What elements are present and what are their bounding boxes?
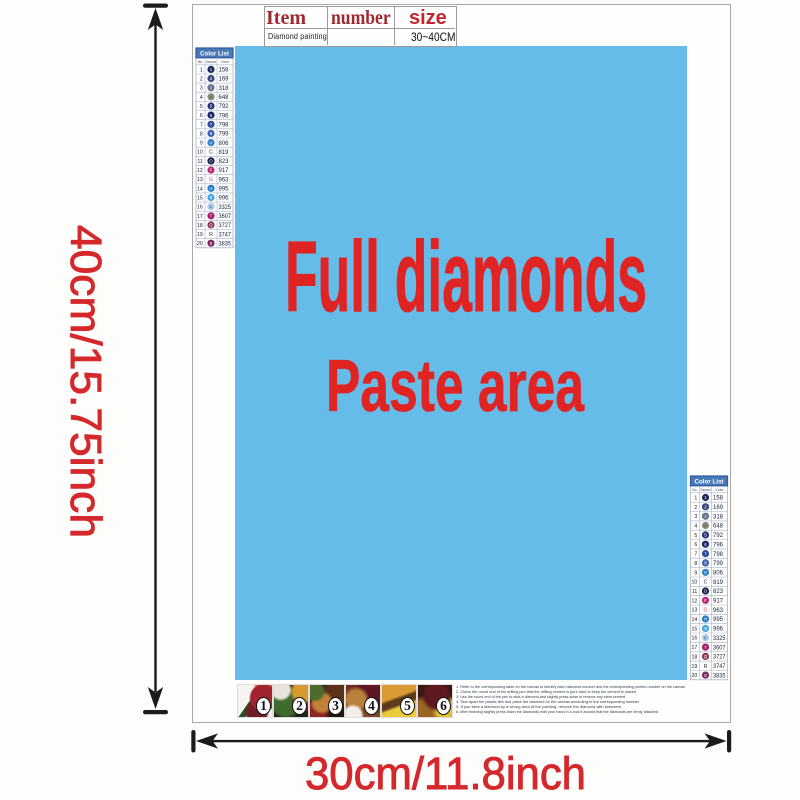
svg-text:14: 14 xyxy=(692,617,698,623)
svg-text:3835: 3835 xyxy=(219,241,232,247)
svg-text:3727: 3727 xyxy=(713,655,726,661)
svg-text:Q: Q xyxy=(209,223,213,228)
svg-text:15: 15 xyxy=(197,196,203,202)
svg-text:C: C xyxy=(704,580,708,586)
svg-text:2: 2 xyxy=(694,505,697,511)
svg-text:806: 806 xyxy=(219,141,230,147)
svg-text:30cm/11.8inch: 30cm/11.8inch xyxy=(305,748,586,799)
svg-text:6: 6 xyxy=(694,542,697,548)
svg-text:158: 158 xyxy=(713,496,724,502)
svg-text:4: 4 xyxy=(200,95,203,101)
svg-text:823: 823 xyxy=(219,159,230,165)
svg-text:806: 806 xyxy=(713,571,724,577)
svg-text:917: 917 xyxy=(713,599,724,605)
svg-text:G: G xyxy=(209,177,213,183)
svg-text:T: T xyxy=(210,214,213,219)
svg-text:12: 12 xyxy=(692,598,698,604)
svg-text:796: 796 xyxy=(713,542,724,548)
svg-text:9: 9 xyxy=(694,570,697,576)
svg-text:15: 15 xyxy=(692,626,698,632)
svg-text:No.: No. xyxy=(198,60,203,64)
svg-text:3727: 3727 xyxy=(219,223,232,229)
svg-text:40cm/15.75inch: 40cm/15.75inch xyxy=(61,225,110,538)
svg-text:819: 819 xyxy=(713,580,724,586)
svg-text:996: 996 xyxy=(713,627,724,633)
svg-text:19: 19 xyxy=(692,664,698,670)
svg-text:6. After finishing slightly pr: 6. After finishing slightly press down t… xyxy=(456,709,658,714)
svg-text:Color List: Color List xyxy=(695,478,725,485)
svg-text:10: 10 xyxy=(197,150,203,156)
svg-text:648: 648 xyxy=(713,524,724,530)
svg-text:C: C xyxy=(209,150,213,156)
svg-text:169: 169 xyxy=(713,505,724,511)
svg-text:8: 8 xyxy=(694,561,697,567)
svg-text:H: H xyxy=(704,617,707,622)
svg-text:Color: Color xyxy=(715,488,724,492)
svg-text:20: 20 xyxy=(197,241,203,247)
svg-text:3747: 3747 xyxy=(219,232,232,238)
svg-text:3835: 3835 xyxy=(713,673,726,679)
svg-text:16: 16 xyxy=(692,636,698,642)
svg-text:799: 799 xyxy=(219,132,230,138)
svg-text:3607: 3607 xyxy=(219,214,232,220)
svg-text:963: 963 xyxy=(219,177,230,183)
svg-text:Q: Q xyxy=(704,654,708,659)
svg-text:819: 819 xyxy=(219,150,230,156)
svg-text:798: 798 xyxy=(713,552,724,558)
svg-text:995: 995 xyxy=(219,187,230,193)
svg-text:9: 9 xyxy=(200,141,203,147)
svg-text:169: 169 xyxy=(219,77,230,83)
svg-text:3325: 3325 xyxy=(713,636,726,642)
svg-text:798: 798 xyxy=(219,123,230,129)
svg-text:3325: 3325 xyxy=(219,205,232,211)
svg-text:3747: 3747 xyxy=(713,664,726,670)
svg-text:13: 13 xyxy=(692,608,698,614)
svg-text:2: 2 xyxy=(200,77,203,83)
svg-text:995: 995 xyxy=(713,617,724,623)
svg-text:318: 318 xyxy=(219,86,230,92)
svg-text:Color List: Color List xyxy=(200,50,230,57)
svg-text:792: 792 xyxy=(713,533,724,539)
svg-text:3: 3 xyxy=(694,514,697,520)
svg-text:6: 6 xyxy=(200,113,203,119)
svg-text:648: 648 xyxy=(219,95,230,101)
svg-text:18: 18 xyxy=(197,223,203,229)
svg-text:R: R xyxy=(209,232,213,238)
svg-text:796: 796 xyxy=(219,113,230,119)
svg-text:O: O xyxy=(209,159,213,164)
svg-text:No.: No. xyxy=(692,488,697,492)
svg-text:963: 963 xyxy=(713,608,724,614)
svg-text:18: 18 xyxy=(692,654,698,660)
svg-text:K: K xyxy=(210,204,213,209)
svg-text:17: 17 xyxy=(197,214,203,220)
svg-text:14: 14 xyxy=(197,186,203,192)
svg-text:11: 11 xyxy=(197,159,202,165)
svg-text:F: F xyxy=(210,168,213,173)
svg-text:10: 10 xyxy=(692,580,698,586)
svg-text:11: 11 xyxy=(692,589,697,595)
svg-text:O: O xyxy=(704,589,708,594)
svg-text:Color: Color xyxy=(221,60,230,64)
svg-text:3: 3 xyxy=(200,86,203,92)
svg-text:1: 1 xyxy=(694,496,697,502)
svg-text:996: 996 xyxy=(219,196,230,202)
svg-text:20: 20 xyxy=(692,673,698,679)
svg-text:799: 799 xyxy=(713,561,724,567)
svg-text:F: F xyxy=(704,598,707,603)
svg-text:Diamond: Diamond xyxy=(701,488,711,492)
svg-text:13: 13 xyxy=(197,177,203,183)
svg-text:Diamond: Diamond xyxy=(206,60,216,64)
svg-text:17: 17 xyxy=(692,645,698,651)
svg-text:3607: 3607 xyxy=(713,645,726,651)
svg-text:12: 12 xyxy=(197,168,203,174)
svg-text:Paste area: Paste area xyxy=(326,346,585,427)
svg-text:16: 16 xyxy=(197,205,203,211)
svg-text:318: 318 xyxy=(713,514,724,520)
svg-text:G: G xyxy=(703,608,707,614)
svg-text:823: 823 xyxy=(713,589,724,595)
svg-text:4: 4 xyxy=(694,524,697,530)
svg-text:158: 158 xyxy=(219,68,230,74)
svg-text:7: 7 xyxy=(694,552,697,558)
svg-text:7: 7 xyxy=(200,122,203,128)
svg-text:R: R xyxy=(704,664,708,670)
svg-text:V: V xyxy=(210,140,213,145)
svg-text:5: 5 xyxy=(694,533,697,539)
svg-text:8: 8 xyxy=(200,131,203,137)
svg-text:5: 5 xyxy=(200,104,203,110)
svg-text:T: T xyxy=(704,645,707,650)
svg-text:19: 19 xyxy=(197,232,203,238)
svg-text:917: 917 xyxy=(219,168,230,174)
svg-text:H: H xyxy=(209,186,212,191)
svg-text:1: 1 xyxy=(200,67,203,73)
svg-text:V: V xyxy=(704,570,707,575)
svg-text:792: 792 xyxy=(219,104,230,110)
svg-text:Full diamonds: Full diamonds xyxy=(285,221,647,333)
svg-text:K: K xyxy=(704,635,707,640)
